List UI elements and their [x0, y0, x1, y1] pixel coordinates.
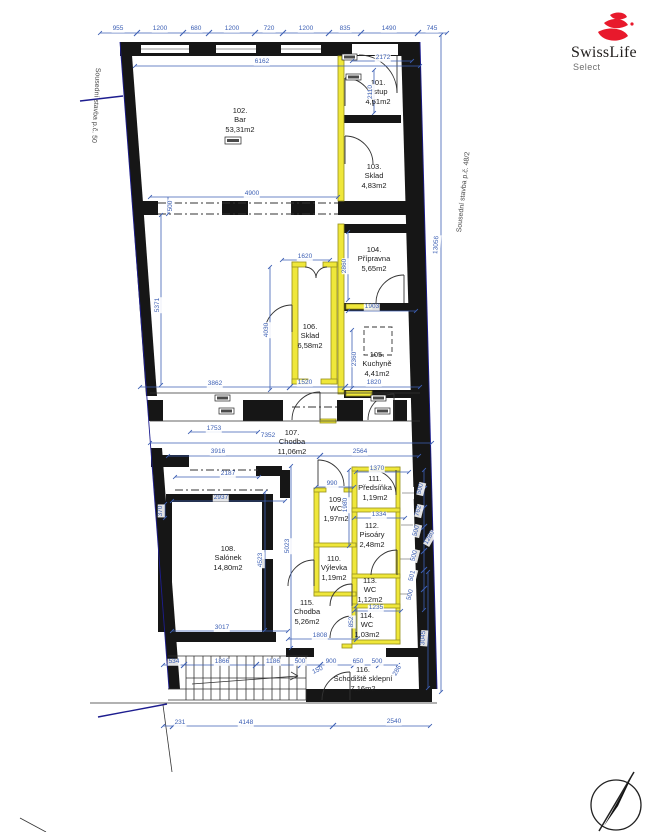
demolition-lines — [158, 203, 392, 490]
compass-icon — [591, 772, 641, 831]
window-openings — [141, 44, 414, 600]
swisslife-icon — [598, 13, 634, 41]
kitchen-unit-dashed-box — [364, 327, 392, 355]
interior-lines — [150, 393, 420, 700]
new-walls — [292, 56, 400, 648]
stair-direction-arrow — [192, 676, 298, 684]
drawing-sheet: 101.Vstup4,51m2102.Bar53,31m2103.Sklad4,… — [0, 0, 652, 832]
dimension-ticks — [134, 30, 427, 729]
staircase — [186, 656, 306, 700]
level-markers — [215, 54, 390, 414]
logo-sub-text: Select — [573, 62, 600, 72]
walls — [120, 42, 437, 702]
logo-brand-text: SwissLife — [571, 44, 637, 62]
